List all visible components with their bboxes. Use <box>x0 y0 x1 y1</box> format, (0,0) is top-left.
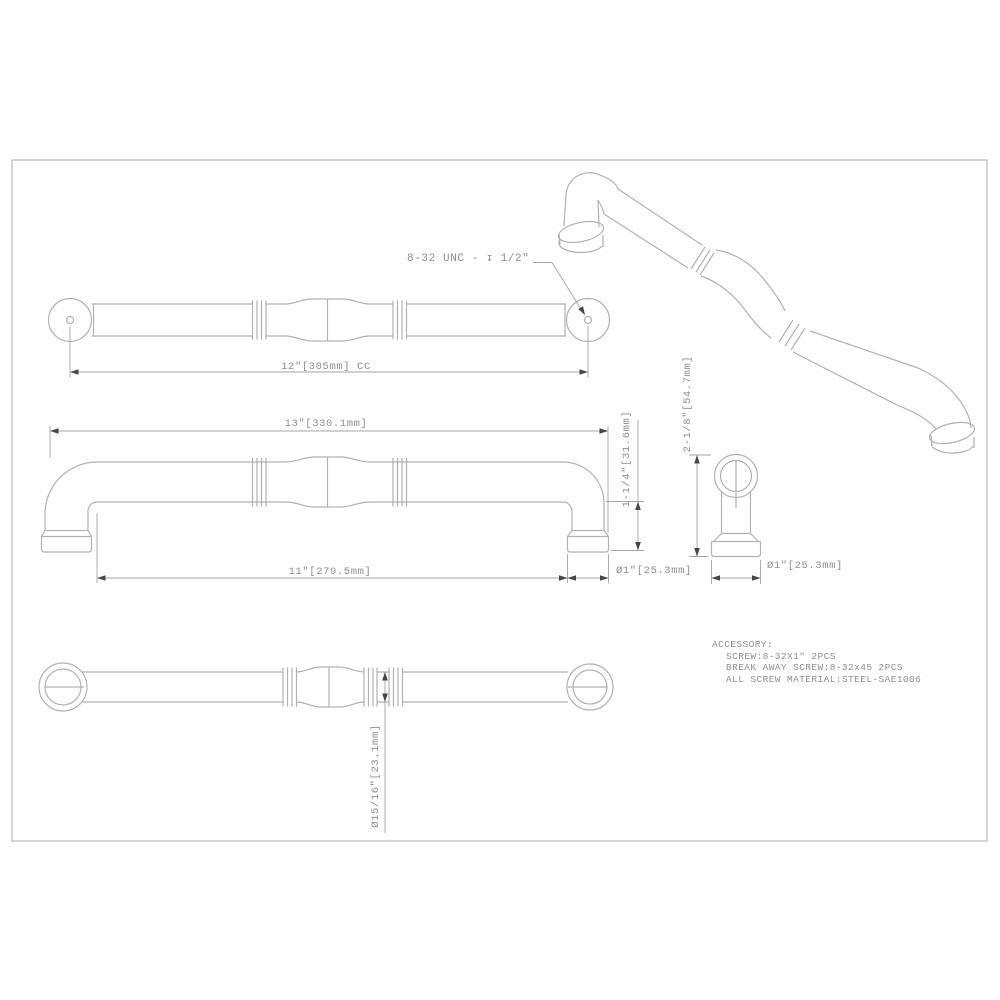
tube2-top <box>810 331 918 368</box>
bar-joints <box>94 304 566 336</box>
barrel-bottom <box>297 702 365 707</box>
tube1-top <box>618 189 702 245</box>
arrow <box>712 575 721 581</box>
barrel-bottom-edge <box>701 276 771 338</box>
end-base-diameter-label: Ø1"[25.3mm] <box>767 560 843 572</box>
bottom-foot-flange <box>927 419 976 448</box>
arrow <box>382 672 388 681</box>
base-block <box>712 542 761 557</box>
bottom-elbow-inner <box>897 405 936 429</box>
arrow <box>752 575 761 581</box>
left-screw-hole <box>67 317 74 324</box>
arrow <box>97 575 106 581</box>
side-view <box>42 457 609 552</box>
arrow <box>50 428 59 434</box>
front-view <box>49 299 610 342</box>
accessory-line-breakaway: BREAK AWAY SCREW:8-32x45 2PCS <box>712 662 921 674</box>
arrow <box>600 575 609 581</box>
side-base-diameter-label: Ø1"[25.3mm] <box>616 565 692 577</box>
arrow <box>694 455 700 464</box>
rings-b <box>779 320 805 350</box>
height-extensions <box>689 455 711 557</box>
arrow <box>580 369 589 375</box>
drawing-page: 8-32 UNC - ↧ 1/2" 12"[305mm] CC 13"[330.… <box>0 0 1000 1000</box>
base-spacing-label: 11"[279.5mm] <box>289 566 372 578</box>
tube1-bottom <box>604 214 688 268</box>
accessory-note-block: ACCESSORY: SCREW:8-32X1" 2PCS BREAK AWAY… <box>712 639 921 685</box>
overall-length-label: 13"[330.1mm] <box>285 418 368 430</box>
top-elbow-outer <box>566 173 618 196</box>
accessory-line-material: ALL SCREW MATERIAL:STEEL-SAE1006 <box>712 674 921 686</box>
overall-height-label: 2-1/8"[54.7mm] <box>682 356 694 453</box>
arrow <box>70 369 79 375</box>
accessory-line-screw: SCREW:8-32X1" 2PCS <box>712 651 921 663</box>
overall-extension-lines <box>50 426 608 533</box>
drawing-linework <box>0 0 1000 1000</box>
barrel-top <box>297 667 365 672</box>
leader-arrow <box>578 306 587 316</box>
dimension-arrowheads <box>50 306 761 702</box>
right-screw-hole <box>585 317 592 324</box>
band-group-a <box>283 668 297 707</box>
left-foot <box>42 531 92 553</box>
cc-dimension-label: 12"[305mm] CC <box>281 361 371 373</box>
base-flare <box>712 534 761 542</box>
arrow <box>635 542 641 551</box>
arrow <box>600 428 609 434</box>
grip-diameter-label: Ø15/16"[23.1mm] <box>370 724 382 828</box>
right-ring-bands <box>393 458 407 507</box>
arrow <box>568 575 577 581</box>
left-elbow <box>45 462 97 531</box>
thread-note: 8-32 UNC - ↧ 1/2" <box>407 251 529 265</box>
band-group-c <box>389 668 403 707</box>
accessory-title: ACCESSORY: <box>712 639 921 651</box>
arrow <box>635 502 641 511</box>
band-group-b <box>364 668 377 707</box>
perspective-view <box>557 173 977 453</box>
projection-label: 1-1/4"[31.6mm] <box>621 411 633 508</box>
thread-leader-line <box>533 263 584 315</box>
end-view-dimensions <box>689 455 761 584</box>
right-foot <box>568 531 609 553</box>
left-ring-bands <box>253 301 267 340</box>
right-elbow <box>563 462 604 531</box>
arrow <box>694 548 700 557</box>
left-ring-bands <box>253 458 267 507</box>
arrow <box>382 694 388 703</box>
rings-a <box>691 247 714 275</box>
right-ring-bands <box>393 301 407 340</box>
end-view <box>712 455 761 557</box>
bottom-view <box>39 663 613 711</box>
tube2-bottom <box>793 352 897 405</box>
barrel-top-edge <box>716 250 785 311</box>
arrow <box>559 575 568 581</box>
